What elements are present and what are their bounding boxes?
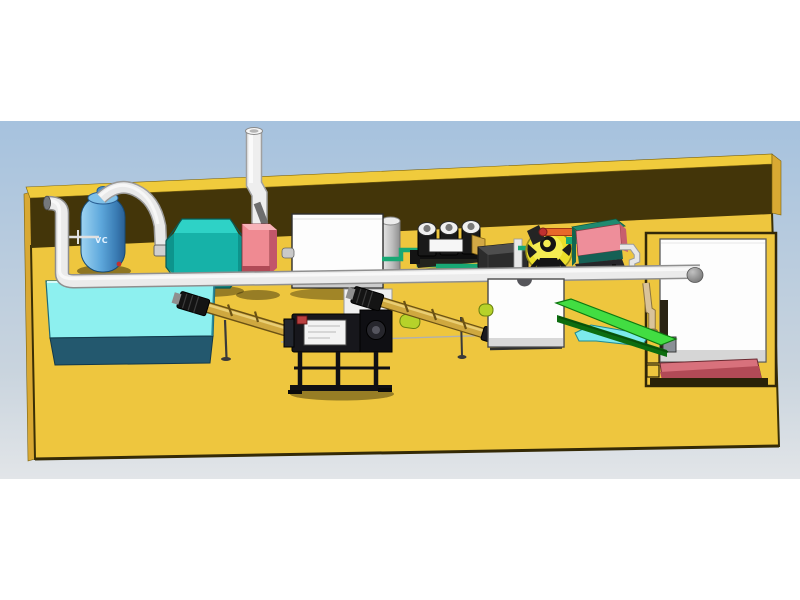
white-hopper-box	[479, 279, 564, 349]
right-storage-cabin	[646, 233, 776, 387]
plant-3d-render: VC	[0, 0, 800, 600]
pipe-open-end	[43, 196, 50, 210]
pipe-end-cap	[687, 268, 703, 283]
cad-render-image: VC	[0, 0, 800, 600]
